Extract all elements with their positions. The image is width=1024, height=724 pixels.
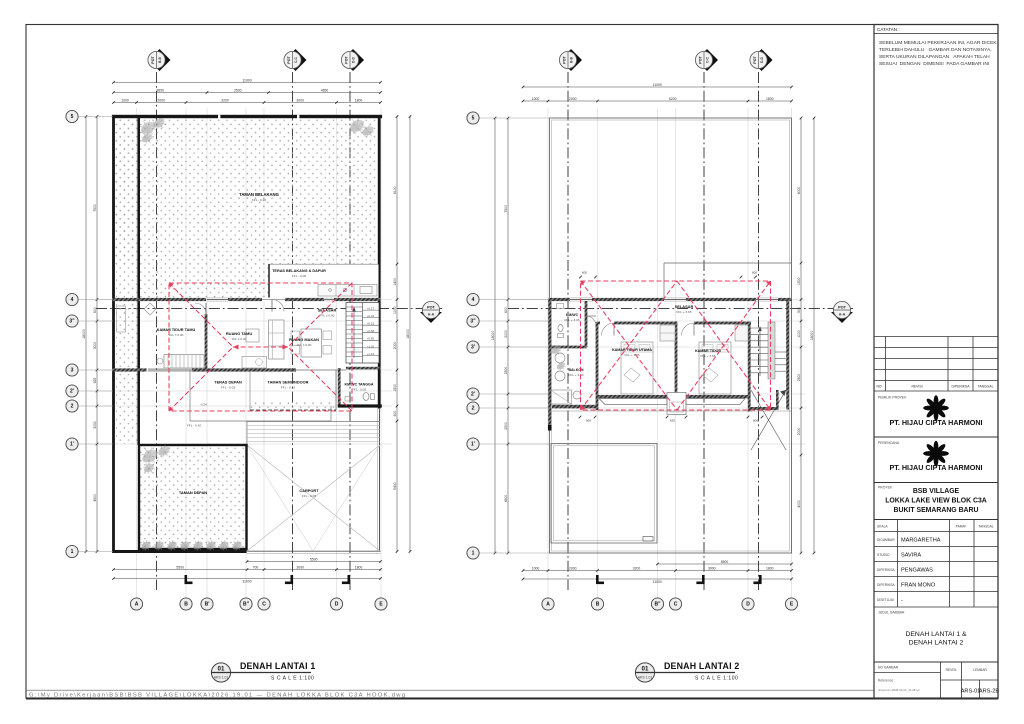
svg-text:POT: POT (698, 56, 702, 64)
svg-text:18000: 18000 (406, 329, 410, 339)
svg-text:600: 600 (752, 271, 757, 275)
svg-text:2: 2 (472, 406, 475, 412)
svg-text:11000: 11000 (242, 78, 251, 82)
svg-text:B: B (596, 602, 600, 608)
svg-text:A-A: A-A (839, 312, 846, 316)
svg-text:1000: 1000 (121, 99, 129, 103)
svg-text:ARS 1.01: ARS 1.01 (638, 676, 653, 680)
svg-text:KM/WC: KM/WC (566, 313, 579, 317)
svg-text:RUANG MAKAN: RUANG MAKAN (289, 337, 319, 342)
svg-text:S C A L E 1:100: S C A L E 1:100 (271, 676, 314, 682)
svg-text:3850: 3850 (156, 89, 164, 93)
svg-text:PENGAWAS: PENGAWAS (901, 568, 933, 574)
svg-text:shoproom-2008-04-01_11-28.rpt: shoproom-2008-04-01_11-28.rpt (878, 688, 920, 692)
svg-text:NO GAMBAR: NO GAMBAR (878, 666, 899, 670)
svg-text:RUANG TAMU: RUANG TAMU (226, 331, 252, 336)
svg-text:18000: 18000 (810, 331, 814, 341)
svg-text:FRAN MONO: FRAN MONO (901, 583, 936, 589)
svg-text:925: 925 (93, 378, 97, 384)
svg-text:1800: 1800 (766, 97, 774, 101)
svg-text:+1.19: +1.19 (367, 352, 375, 356)
svg-text:2000: 2000 (569, 567, 577, 571)
svg-text:B': B' (205, 602, 210, 608)
svg-text:3000: 3000 (296, 566, 304, 570)
svg-text:1800: 1800 (355, 566, 363, 570)
svg-text:TANGGAL: TANGGAL (978, 525, 994, 529)
svg-text:1: 1 (71, 549, 74, 555)
svg-text:C-C: C-C (294, 56, 298, 63)
svg-text:2000: 2000 (504, 330, 508, 338)
svg-text:600: 600 (586, 419, 591, 423)
svg-text:G:\My Drive\Kerjaan\BSB\BSB VI: G:\My Drive\Kerjaan\BSB\BSB VILLAGE\LOKK… (29, 693, 406, 699)
svg-text:B": B" (243, 602, 250, 608)
svg-text:3200: 3200 (221, 99, 229, 103)
svg-text:1000: 1000 (532, 97, 540, 101)
svg-text:POT: POT (427, 305, 435, 309)
svg-text:SKALA: SKALA (877, 525, 888, 529)
svg-text:600: 600 (93, 307, 97, 313)
svg-text:4500: 4500 (93, 494, 97, 502)
svg-text:900: 900 (797, 307, 801, 313)
svg-text:5: 5 (472, 116, 475, 122)
svg-text:POT: POT (562, 56, 566, 64)
svg-text:C-C: C-C (705, 56, 709, 63)
svg-text:KAMAR TIDUR: KAMAR TIDUR (695, 349, 721, 353)
svg-text:3000: 3000 (93, 342, 97, 350)
svg-text:DISETUJUI: DISETUJUI (877, 598, 894, 602)
svg-text:5: 5 (71, 114, 74, 120)
svg-text:DENAH LANTAI 1 &: DENAH LANTAI 1 & (905, 631, 967, 638)
svg-text:6200: 6200 (669, 97, 677, 101)
svg-text:4650: 4650 (321, 89, 329, 93)
svg-text:01: 01 (642, 666, 649, 673)
svg-text:FFL - 0.05: FFL - 0.05 (292, 274, 306, 278)
svg-text:A: A (135, 602, 139, 608)
svg-text:3000: 3000 (708, 567, 716, 571)
svg-text:FFL - 0.05: FFL - 0.05 (221, 386, 235, 390)
svg-text:7500: 7500 (504, 205, 508, 213)
svg-text:2': 2' (471, 392, 475, 398)
svg-text:700: 700 (253, 566, 259, 570)
svg-text:-0.24: -0.24 (200, 403, 207, 407)
svg-text:POT: POT (753, 56, 757, 64)
svg-text:2000: 2000 (393, 342, 397, 350)
svg-text:BALKON: BALKON (569, 368, 584, 372)
svg-text:TERAS BELAKANG & DAPUR: TERAS BELAKANG & DAPUR (272, 269, 326, 273)
svg-text:-: - (901, 598, 903, 604)
svg-text:1400: 1400 (393, 278, 397, 286)
svg-text:2: 2 (71, 404, 74, 410)
svg-text:6000: 6000 (797, 187, 801, 195)
svg-text:FFL - 0.20: FFL - 0.20 (252, 198, 266, 202)
svg-text:1: 1 (472, 551, 475, 557)
svg-text:2': 2' (70, 389, 74, 395)
svg-text:REVISI: REVISI (946, 668, 957, 672)
svg-text:1': 1' (70, 442, 74, 448)
svg-text:600: 600 (393, 411, 397, 417)
svg-text:+0.51: +0.51 (367, 322, 375, 326)
svg-text:PT. HIJAU CIPTA HARMONI: PT. HIJAU CIPTA HARMONI (889, 463, 982, 472)
svg-text:PERENCANA: PERENCANA (878, 441, 900, 445)
svg-text:2000: 2000 (569, 97, 577, 101)
svg-text:FFL ± 0.00: FFL ± 0.00 (320, 314, 335, 318)
svg-text:ARS 1.01: ARS 1.01 (214, 676, 229, 680)
svg-text:4: 4 (71, 297, 74, 303)
svg-text:S C A L E 1:100: S C A L E 1:100 (695, 676, 738, 682)
svg-text:DIPERIKSA: DIPERIKSA (951, 385, 970, 389)
svg-text:FFL + 3.35: FFL + 3.35 (565, 318, 580, 322)
svg-text:ARS-2B: ARS-2B (979, 689, 999, 695)
svg-text:A-A: A-A (428, 312, 435, 316)
svg-text:2000: 2000 (157, 99, 165, 103)
svg-text:JUDUL GAMBAR: JUDUL GAMBAR (878, 611, 905, 615)
svg-text:POT: POT (344, 56, 348, 64)
svg-text:600: 600 (582, 271, 587, 275)
svg-text:625: 625 (670, 419, 675, 423)
svg-text:DENAH LANTAI 2: DENAH LANTAI 2 (909, 640, 964, 647)
svg-text:+0.34: +0.34 (367, 314, 375, 318)
svg-text:11000: 11000 (653, 580, 662, 584)
svg-text:1800: 1800 (766, 567, 774, 571)
svg-text:11000: 11000 (653, 83, 662, 87)
svg-text:CATATAN :: CATATAN : (877, 27, 900, 32)
svg-text:3200: 3200 (633, 567, 641, 571)
svg-text:D: D (335, 602, 339, 608)
svg-text:DENAH LANTAI 2: DENAH LANTAI 2 (664, 661, 739, 671)
svg-text:MARGARETHA: MARGARETHA (901, 538, 941, 544)
svg-text:6100: 6100 (393, 186, 397, 194)
svg-text:1000: 1000 (532, 567, 540, 571)
svg-text:+0.85: +0.85 (367, 337, 375, 341)
svg-text:3": 3" (470, 319, 476, 325)
svg-text:B-B: B-B (569, 56, 573, 63)
svg-text:C: C (674, 602, 678, 608)
svg-text:2000: 2000 (797, 428, 801, 436)
svg-text:5500: 5500 (310, 557, 318, 561)
svg-text:4500: 4500 (504, 495, 508, 503)
svg-text:3050: 3050 (93, 421, 97, 429)
svg-text:STUDIO: STUDIO (877, 553, 890, 557)
svg-text:2500: 2500 (504, 422, 508, 430)
svg-text:A: A (546, 602, 550, 608)
svg-text:FFL ± 0.00: FFL ± 0.00 (169, 333, 184, 337)
svg-text:FFL - 0.10: FFL - 0.10 (281, 386, 295, 390)
svg-text:2500: 2500 (797, 374, 801, 382)
svg-text:ARS-01: ARS-01 (961, 689, 981, 695)
svg-text:TAMAN BELAKANG: TAMAN BELAKANG (239, 192, 279, 197)
svg-text:4000: 4000 (797, 500, 801, 508)
svg-text:D-D: D-D (760, 56, 764, 63)
svg-text:REVISI: REVISI (911, 385, 922, 389)
svg-text:TAMAN DEPAN: TAMAN DEPAN (179, 490, 207, 495)
svg-text:FFL + 3.65: FFL + 3.65 (701, 354, 716, 358)
svg-text:1': 1' (471, 442, 475, 448)
svg-text:18000: 18000 (491, 331, 495, 341)
svg-text:BSB VILLAGE: BSB VILLAGE (913, 488, 960, 495)
svg-text:POT: POT (838, 305, 846, 309)
svg-text:7500: 7500 (93, 204, 97, 212)
svg-text:PT. HIJAU CIPTA HARMONI: PT. HIJAU CIPTA HARMONI (889, 418, 982, 427)
svg-text:1500: 1500 (393, 384, 397, 392)
svg-text:PEMILIK PROYEK: PEMILIK PROYEK (878, 396, 907, 400)
svg-text:3000: 3000 (296, 99, 304, 103)
svg-text:LOKKA LAKE VIEW BLOK C3A: LOKKA LAKE VIEW BLOK C3A (885, 498, 987, 505)
svg-text:FFL ± 0.00: FFL ± 0.00 (232, 337, 247, 341)
svg-text:PROYEK: PROYEK (878, 486, 893, 490)
svg-text:3: 3 (71, 368, 74, 374)
svg-text:2500: 2500 (234, 89, 242, 93)
svg-text:+0.68: +0.68 (367, 329, 375, 333)
svg-text:600: 600 (753, 419, 758, 423)
svg-text:+1.02: +1.02 (367, 344, 375, 348)
svg-text:TAMAN SEMI INDOOR: TAMAN SEMI INDOOR (268, 380, 309, 385)
svg-text:B-B: B-B (158, 56, 162, 63)
svg-text:SELASAR: SELASAR (318, 308, 337, 313)
svg-text:KAMAR TIDUR TAMU: KAMAR TIDUR TAMU (157, 328, 196, 332)
svg-text:1800: 1800 (355, 99, 363, 103)
svg-text:D: D (746, 602, 750, 608)
svg-text:1000: 1000 (393, 306, 397, 314)
svg-text:C: C (262, 602, 266, 608)
svg-text:600: 600 (504, 307, 508, 313)
svg-text:DIGAMBAR: DIGAMBAR (877, 538, 895, 542)
svg-text:TERAS DEPAN: TERAS DEPAN (214, 380, 242, 385)
svg-text:TANGGAL: TANGGAL (978, 385, 994, 389)
svg-text:4: 4 (472, 297, 475, 303)
svg-text:SAVIRA: SAVIRA (901, 553, 921, 559)
svg-text:FFL + 3.60: FFL + 3.60 (569, 373, 584, 377)
svg-text:Reference :: Reference : (878, 679, 895, 683)
svg-text:FFL + 3.65: FFL + 3.65 (677, 310, 692, 314)
svg-text:18000: 18000 (82, 329, 86, 339)
svg-text:FFL - 0.05: FFL - 0.05 (302, 494, 316, 498)
svg-text:3500: 3500 (504, 367, 508, 375)
svg-text:5500: 5500 (721, 560, 729, 564)
svg-text:DENAH LANTAI 1: DENAH LANTAI 1 (240, 661, 315, 671)
svg-text:1100: 1100 (797, 330, 801, 337)
svg-text:CARPORT: CARPORT (299, 488, 319, 493)
svg-text:PARAF: PARAF (956, 525, 967, 529)
svg-text:5500: 5500 (176, 566, 184, 570)
svg-text:DIPERIKSA: DIPERIKSA (877, 568, 895, 572)
svg-text:KM/WC TANGGA: KM/WC TANGGA (345, 383, 374, 387)
svg-text:FFL - 0.05: FFL - 0.05 (352, 388, 366, 392)
svg-text:POT: POT (287, 56, 291, 64)
svg-text:+0.17: +0.17 (367, 307, 375, 311)
svg-text:B": B" (655, 602, 662, 608)
svg-text:1500: 1500 (797, 277, 801, 285)
svg-text:B: B (184, 602, 188, 608)
svg-text:NO.: NO. (876, 385, 882, 389)
svg-text:LEMBAR: LEMBAR (973, 668, 987, 672)
svg-text:3": 3" (69, 319, 75, 325)
svg-text:BUKIT SEMARANG BARU: BUKIT SEMARANG BARU (894, 507, 979, 514)
svg-text:DIPERIKSA: DIPERIKSA (877, 583, 895, 587)
svg-text:D-D: D-D (351, 56, 355, 63)
svg-text:POT: POT (151, 56, 155, 64)
svg-text:01: 01 (218, 666, 225, 673)
svg-text:SELASAR: SELASAR (675, 304, 694, 309)
svg-text:11000: 11000 (242, 579, 251, 583)
svg-text:FFL ± 0.00: FFL ± 0.00 (297, 343, 312, 347)
svg-text:FFL - 0.42: FFL - 0.42 (187, 424, 201, 428)
svg-text:5400: 5400 (393, 482, 397, 490)
svg-text:3': 3' (471, 345, 475, 351)
